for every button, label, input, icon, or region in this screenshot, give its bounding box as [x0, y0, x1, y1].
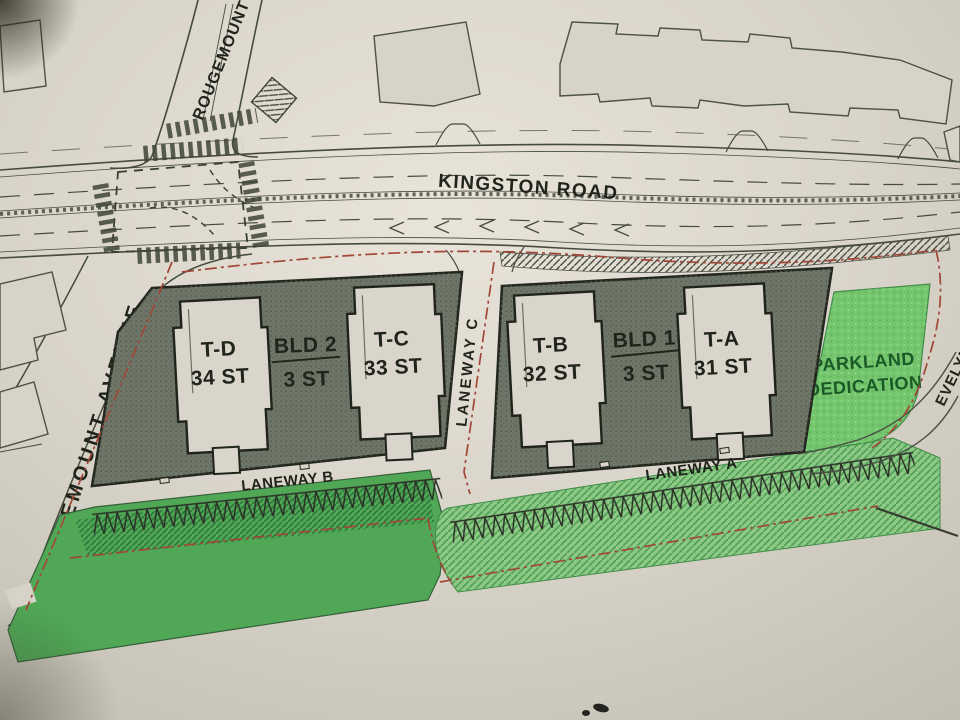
bld1-name: BLD 1 — [612, 326, 676, 352]
photo-corner-shadow-tl — [0, 0, 110, 110]
bld2-name: BLD 2 — [274, 333, 338, 358]
photo-corner-shadow-bl — [0, 590, 140, 720]
bld2-storeys: 3 ST — [283, 367, 330, 392]
tower-ta-id: T-A — [703, 327, 739, 352]
existing-building-top-center — [374, 22, 480, 106]
tower-td-id: T-D — [200, 337, 236, 362]
site-plan-photo: KINGSTON ROAD ROUGEMOUNT ROUGEMOUNT AVEN… — [0, 0, 960, 720]
tower-tc-storeys: 33 ST — [363, 354, 423, 380]
tower-tb-id: T-B — [532, 333, 568, 358]
bld1-storeys: 3 ST — [622, 361, 669, 386]
tower-ta-storeys: 31 ST — [693, 354, 753, 380]
tower-td-storeys: 34 ST — [190, 364, 250, 390]
tower-tb-storeys: 32 ST — [522, 360, 582, 386]
tower-tc-id: T-C — [373, 327, 409, 352]
site-plan-drawing: KINGSTON ROAD ROUGEMOUNT ROUGEMOUNT AVEN… — [0, 0, 960, 720]
